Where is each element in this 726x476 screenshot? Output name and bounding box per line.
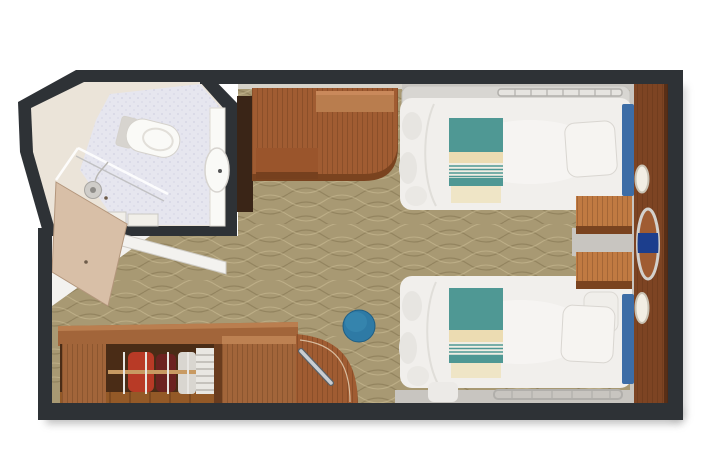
- towel-shelves: [196, 348, 214, 394]
- seat-cushion: [634, 233, 662, 253]
- vanity-stool: [343, 310, 375, 342]
- desk-platform: [256, 148, 318, 172]
- bed-drape-corner: [428, 382, 458, 402]
- door-hinge: [104, 196, 108, 200]
- wall-top: [200, 70, 683, 84]
- desk-unit: [252, 88, 398, 181]
- twin-bed-lower: [399, 276, 634, 402]
- wall-right: [668, 70, 683, 420]
- bathroom: [18, 70, 237, 236]
- nightstand-lower: [576, 252, 632, 289]
- shower-shelf: [128, 214, 158, 226]
- vanity-wall-panel: [634, 84, 668, 403]
- bed-runner-upper: [449, 118, 503, 203]
- closet-divider: [214, 344, 222, 408]
- washbasin: [205, 148, 229, 192]
- door-hinge: [84, 260, 88, 264]
- twin-bed-upper: [399, 86, 634, 210]
- nightstand-upper: [576, 196, 632, 234]
- bed-runner-lower: [449, 288, 503, 378]
- headboard-lower: [622, 294, 634, 384]
- pillow-upper: [564, 120, 618, 177]
- stateroom-floorplan: [0, 0, 726, 476]
- reading-lamp-lower: [636, 293, 649, 323]
- tall-cabinet: [237, 96, 253, 212]
- wall-bottom: [38, 403, 683, 420]
- wall-left: [38, 228, 52, 420]
- pillow-lower-front: [561, 305, 616, 364]
- headboard-upper: [622, 104, 634, 196]
- reading-lamp-upper: [636, 166, 649, 193]
- wardrobe-unit: [58, 322, 298, 410]
- floorplan-canvas: [0, 0, 726, 476]
- fold-rail-upper: [498, 89, 622, 96]
- basin-drain: [218, 169, 222, 173]
- cabinet-top-edge: [222, 336, 298, 344]
